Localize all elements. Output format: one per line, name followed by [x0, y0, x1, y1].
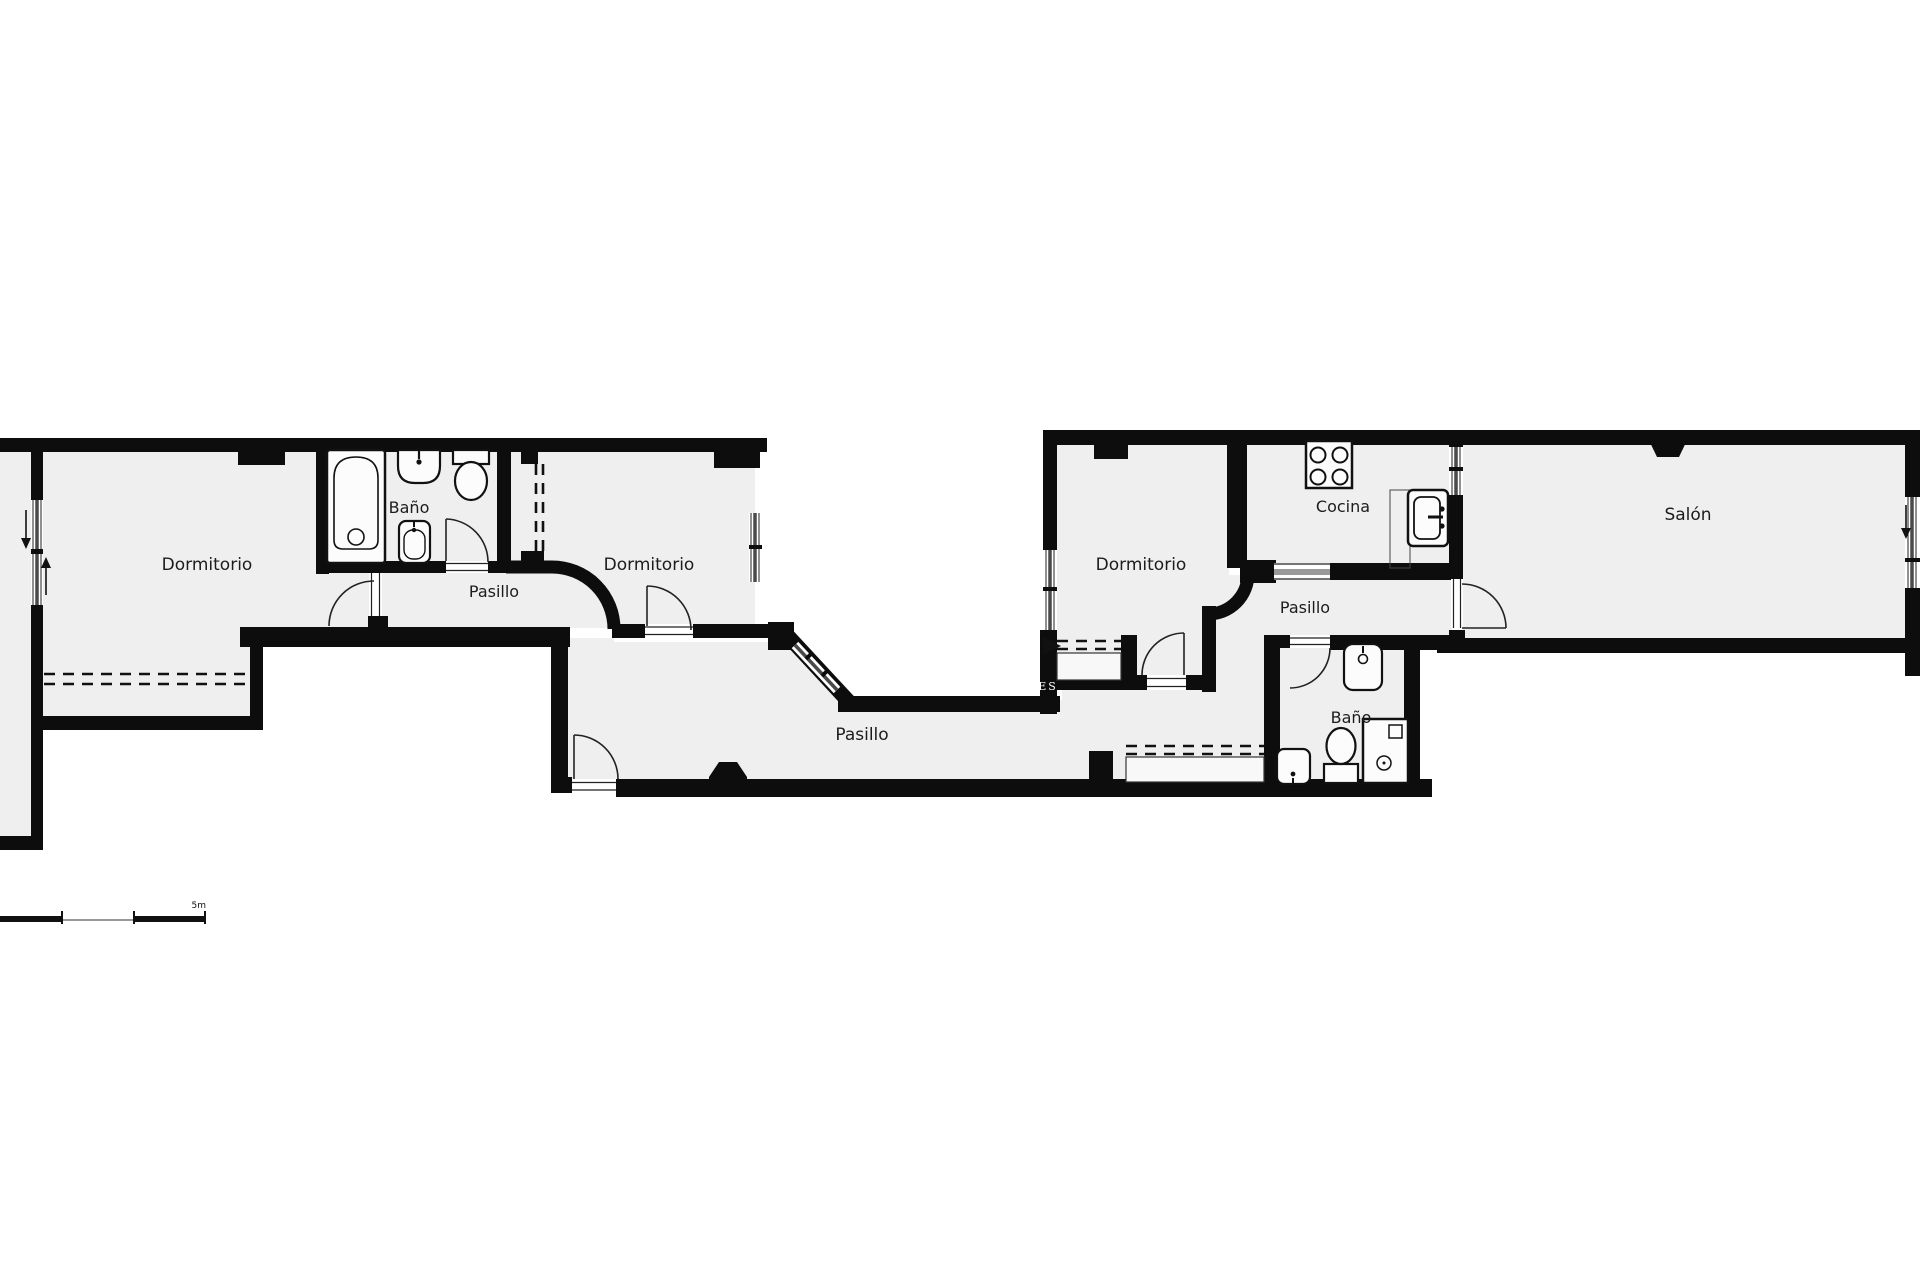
label-salon: Salón: [1664, 505, 1711, 525]
label-cocina: Cocina: [1316, 497, 1370, 516]
sink2-icon: [1344, 644, 1382, 690]
sink-icon: [398, 450, 440, 483]
label-pasillo-1: Pasillo: [469, 582, 519, 601]
label-bano-2: Baño: [1331, 708, 1372, 727]
bidet-icon: [399, 521, 430, 563]
room-salon: [1463, 445, 1907, 640]
window-dormitorio3-left: [1043, 550, 1057, 630]
toilet-icon: [453, 450, 489, 500]
room-side-strip: [0, 452, 33, 838]
floorplan-page: Dormitorio Baño Pasillo Dormitorio Pasil…: [0, 0, 1920, 1280]
label-dormitorio-2: Dormitorio: [604, 555, 695, 575]
toilet2-icon: [1324, 728, 1358, 783]
room-dormitorio-2: [505, 450, 755, 628]
scale-bar: 5m: [0, 901, 206, 924]
door-cocina-sliding: [1274, 563, 1330, 580]
label-dormitorio-3: Dormitorio: [1096, 555, 1187, 575]
window-salon-right: [1905, 497, 1920, 588]
washbasin2-icon: [1277, 749, 1310, 784]
stove-icon: [1306, 441, 1352, 488]
label-dormitorio-1: Dormitorio: [162, 555, 253, 575]
label-bano-1: Baño: [389, 498, 430, 517]
label-pasillo-3: Pasillo: [1280, 598, 1330, 617]
window-cocina-salon: [1449, 447, 1463, 495]
scale-label: 5m: [192, 901, 207, 911]
floorplan-drawing: Dormitorio Baño Pasillo Dormitorio Pasil…: [0, 0, 1920, 1280]
bathtub-icon: [327, 450, 385, 563]
label-pasillo-main: Pasillo: [835, 725, 888, 745]
window-dormitorio2-right: [749, 513, 762, 582]
shower-icon: [1363, 719, 1408, 783]
window-dormitorio1-left: [31, 500, 43, 605]
label-entrance-marker: ES: [1038, 680, 1058, 693]
